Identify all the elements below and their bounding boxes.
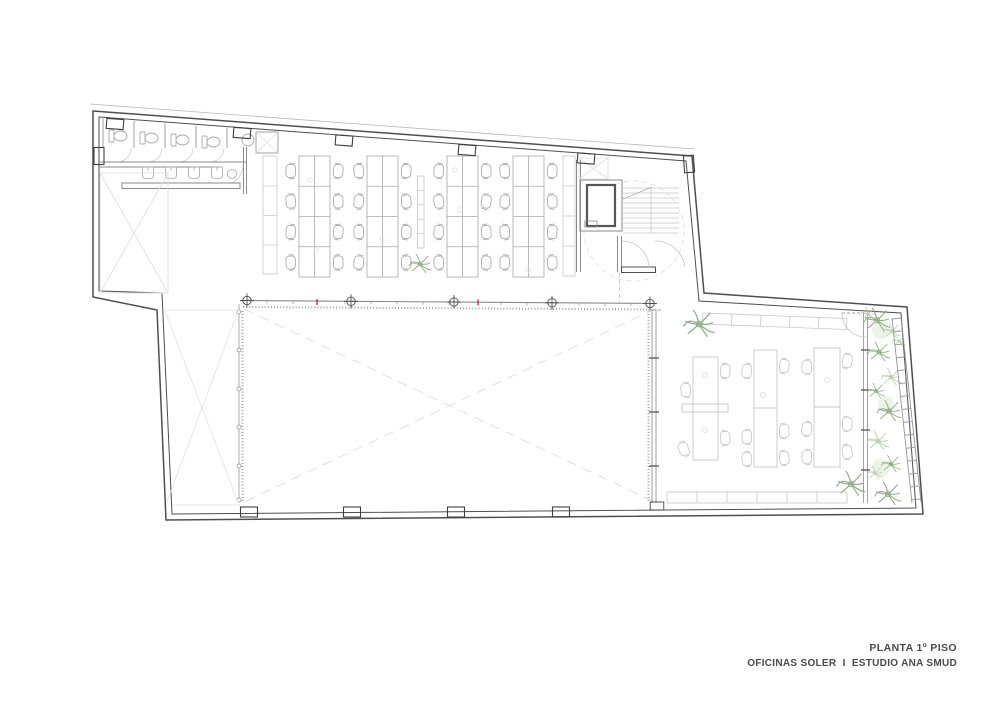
glazing-line: [237, 294, 657, 503]
title-block: PLANTA 1º PISO OFICINAS SOLER I ESTUDIO …: [747, 641, 957, 672]
central-divider-shelf: [418, 176, 425, 248]
elevator: [580, 180, 622, 231]
desk-banks: [299, 156, 544, 277]
room-left-wall: [648, 309, 661, 503]
parapet-line: [90, 104, 695, 149]
open-office-zone: [263, 156, 575, 277]
left-void-room: [100, 173, 168, 293]
project-title: OFICINAS SOLER I ESTUDIO ANA SMUD: [747, 656, 957, 672]
exterior-wall-inner: [99, 117, 916, 514]
main-void-room: [244, 309, 655, 502]
round-fixture: [242, 134, 254, 146]
stall-door-swings: [117, 148, 224, 162]
stair-core: [577, 158, 686, 302]
floor-plan-sheet: PLANTA 1º PISO OFICINAS SOLER I ESTUDIO …: [0, 0, 1000, 707]
left-mullion-line: [237, 304, 241, 502]
bathroom-zone: [0, 0, 278, 194]
bottom-shelf: [667, 492, 847, 503]
toilet-fixtures: [0, 0, 220, 148]
floor-plan-drawing: [0, 0, 1000, 707]
vanity-shelf: [122, 183, 240, 189]
room-right-wall: [861, 312, 870, 503]
structural-columns: [94, 118, 695, 517]
meeting-room-zone: [648, 309, 870, 503]
stair-treads: [623, 188, 679, 233]
exterior-wall-outer: [93, 111, 923, 520]
service-shaft: [256, 132, 278, 153]
vent-shaft: [579, 158, 608, 179]
plan-title: PLANTA 1º PISO: [747, 641, 957, 656]
garden-door: [842, 313, 866, 337]
storage-cabinet-left: [263, 156, 277, 274]
planting-beds: [872, 321, 894, 477]
side-void-strip: [163, 310, 240, 505]
bathroom-door-swing: [223, 165, 243, 185]
storage-cabinet-right: [563, 156, 575, 276]
core-bottom-wall: [618, 236, 686, 302]
meeting-tables: [682, 348, 840, 467]
top-shelf: [703, 313, 847, 330]
building-shell: [90, 104, 923, 520]
office-plant: [409, 254, 431, 273]
meeting-chairs: [677, 352, 854, 467]
toilet-stall-partitions: [103, 119, 227, 149]
garden-strip: [860, 307, 921, 505]
garden-step-path: [892, 317, 921, 503]
room-plant-top: [684, 310, 715, 337]
